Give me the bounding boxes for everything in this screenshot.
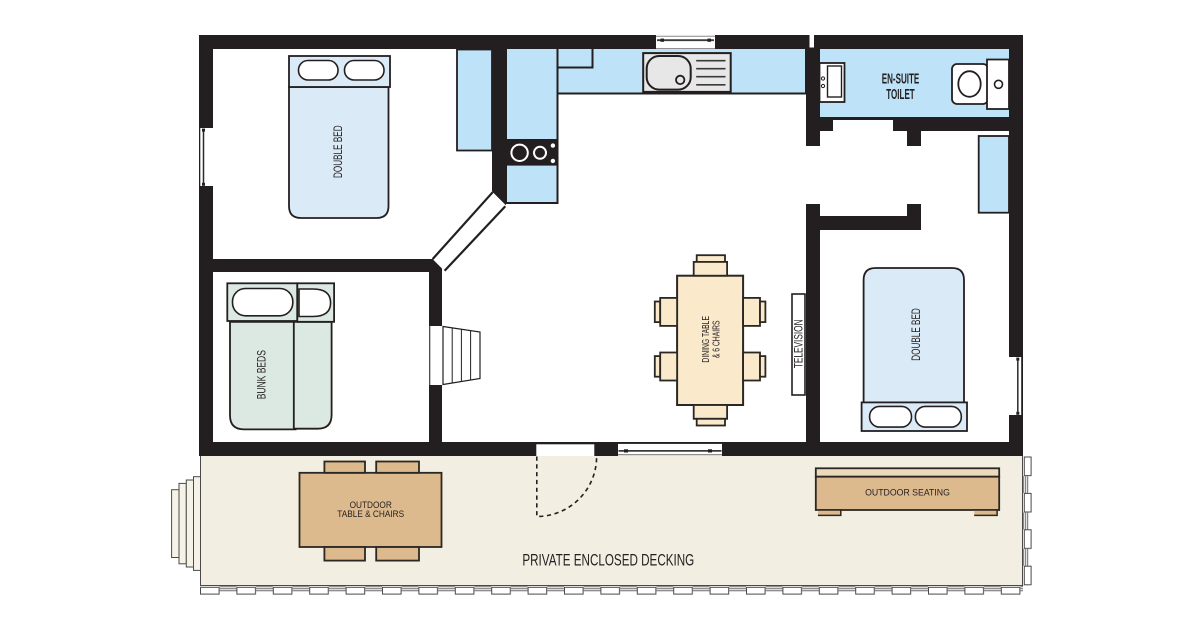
svg-text:TOILET: TOILET xyxy=(886,87,915,103)
svg-text:PRIVATE ENCLOSED DECKING: PRIVATE ENCLOSED DECKING xyxy=(522,551,694,569)
svg-text:EN-SUITE: EN-SUITE xyxy=(882,71,920,87)
svg-text:DOUBLE BED: DOUBLE BED xyxy=(911,308,924,361)
svg-text:BUNK BEDS: BUNK BEDS xyxy=(256,350,269,399)
svg-text:TELEVISION: TELEVISION xyxy=(793,319,806,368)
svg-text:& 6 CHAIRS: & 6 CHAIRS xyxy=(710,320,722,358)
svg-text:OUTDOOR SEATING: OUTDOOR SEATING xyxy=(865,487,950,497)
svg-text:TABLE & CHAIRS: TABLE & CHAIRS xyxy=(337,508,404,518)
svg-text:DOUBLE BED: DOUBLE BED xyxy=(333,125,346,178)
